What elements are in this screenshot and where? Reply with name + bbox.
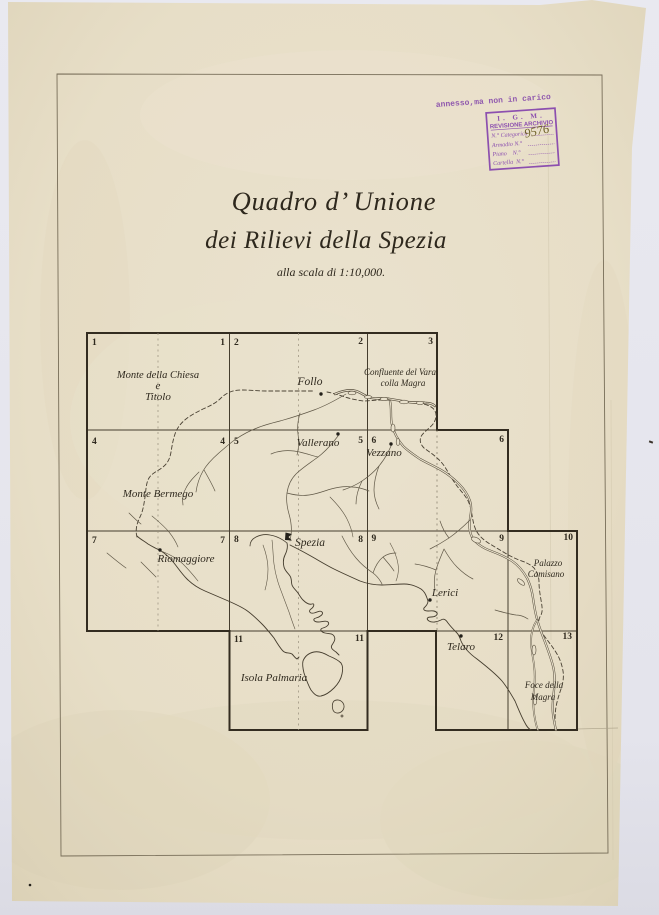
svg-text:9: 9 [372,534,377,544]
svg-text:Confluente del Vara: Confluente del Vara [364,367,436,377]
svg-text:1: 1 [220,338,225,348]
svg-text:Camisano: Camisano [528,569,565,579]
svg-text:8: 8 [234,535,239,545]
svg-text:colla Magra: colla Magra [381,378,426,388]
svg-text:Foce della: Foce della [524,680,564,690]
svg-text:Riomaggiore: Riomaggiore [156,553,214,565]
svg-text:6: 6 [372,436,377,446]
svg-text:5: 5 [358,436,363,446]
svg-text:2: 2 [234,338,239,348]
svg-text:2: 2 [358,337,363,347]
svg-text:12: 12 [494,633,504,643]
svg-text:13: 13 [563,632,573,642]
svg-text:Palazzo: Palazzo [533,558,563,568]
svg-text:8: 8 [358,535,363,545]
svg-text:Magra: Magra [530,692,556,702]
svg-text:6: 6 [499,435,504,445]
svg-text:4: 4 [92,437,97,447]
svg-text:Spezia: Spezia [295,537,325,549]
svg-text:Vezzano: Vezzano [366,447,402,459]
svg-text:1: 1 [92,338,97,348]
svg-text:10: 10 [564,533,574,543]
svg-text:alla scala di 1:10,000.: alla scala di 1:10,000. [277,265,385,279]
svg-text:Quadro d’ Unione: Quadro d’ Unione [232,186,437,216]
svg-text:7: 7 [92,536,97,546]
svg-text:Telaro: Telaro [447,641,475,653]
svg-text:9: 9 [499,534,504,544]
svg-text:Vallerano: Vallerano [297,437,340,449]
svg-text:7: 7 [220,536,225,546]
svg-text:Titolo: Titolo [145,391,171,403]
svg-text:dei Rilievi della Spezia: dei Rilievi della Spezia [205,227,447,254]
svg-text:Lerici: Lerici [431,587,458,599]
svg-text:3: 3 [428,337,433,347]
svg-text:Follo: Follo [297,376,323,388]
svg-text:11: 11 [355,634,364,644]
svg-text:Isola Palmaria: Isola Palmaria [240,672,308,684]
svg-text:11: 11 [234,635,243,645]
svg-text:Monte Bermego: Monte Bermego [122,488,194,500]
svg-text:4: 4 [220,437,225,447]
